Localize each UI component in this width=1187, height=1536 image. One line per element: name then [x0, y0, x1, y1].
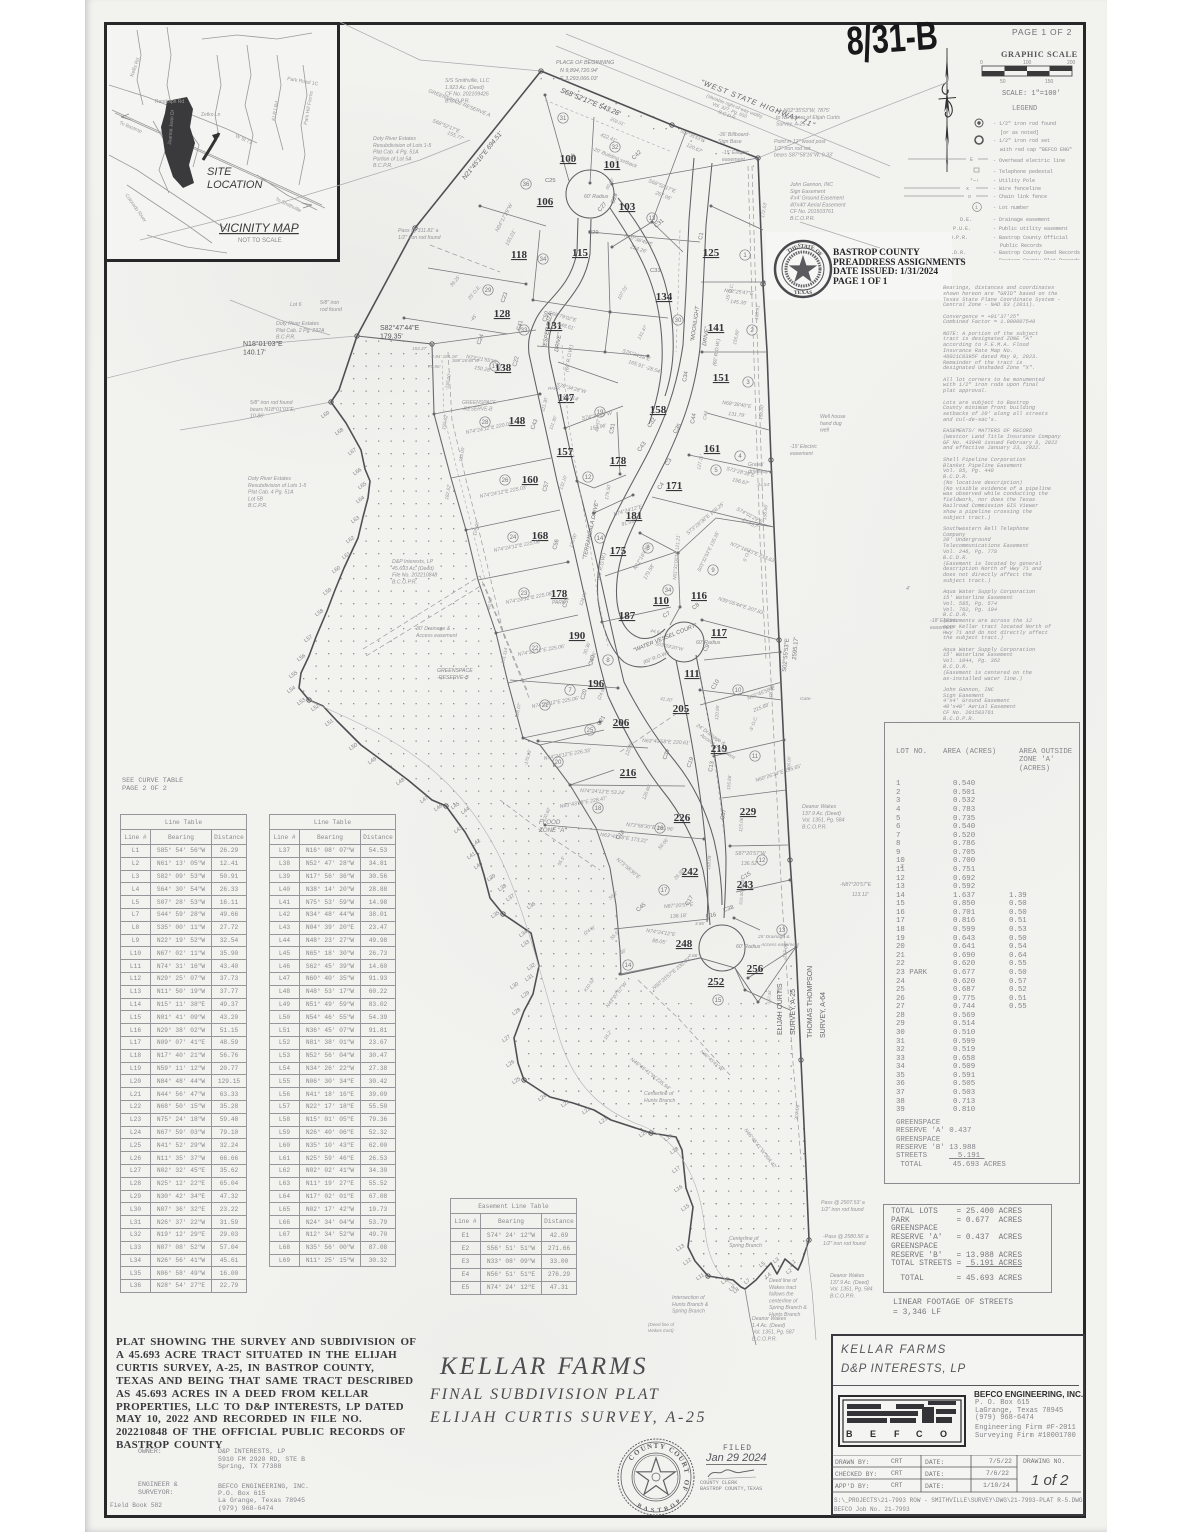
svg-text:L50: L50	[348, 742, 359, 752]
svg-text:L69: L69	[320, 410, 331, 420]
svg-text:151: 151	[713, 372, 730, 384]
svg-text:C1: C1	[698, 232, 705, 240]
svg-text:166.91': 166.91'	[754, 303, 762, 320]
svg-text:Hunts Branch: Hunts Branch	[769, 1312, 801, 1318]
svg-text:ZONE "A": ZONE "A"	[538, 827, 567, 834]
svg-text:88.05': 88.05'	[652, 938, 668, 946]
svg-text:161: 161	[704, 443, 721, 455]
svg-text:easement: easement	[930, 625, 953, 631]
svg-text:34: 34	[665, 588, 672, 594]
svg-text:178: 178	[610, 455, 627, 467]
svg-text:L26: L26	[505, 1059, 516, 1069]
svg-text:N74°24'12"E 225.06': N74°24'12"E 225.06'	[505, 591, 554, 606]
svg-text:36: 36	[523, 182, 530, 188]
svg-text:-36' Billboard-: -36' Billboard-	[718, 132, 750, 138]
svg-text:N39°05'44"E 207.83': N39°05'44"E 207.83'	[717, 596, 765, 617]
svg-text:C45: C45	[635, 902, 647, 913]
svg-text:N74°24'12"E 53.24': N74°24'12"E 53.24'	[580, 788, 626, 796]
svg-text:41.20': 41.20'	[660, 696, 673, 703]
svg-text:3: 3	[746, 380, 750, 386]
svg-text:driveway: driveway	[748, 469, 769, 475]
svg-text:Plat Cab. 4 Pg. 51A: Plat Cab. 4 Pg. 51A	[248, 490, 294, 496]
svg-text:L67: L67	[347, 447, 358, 457]
svg-text:Sign Base: Sign Base	[718, 139, 742, 145]
svg-text:60' Radius: 60' Radius	[584, 194, 609, 200]
svg-text:115: 115	[572, 247, 588, 259]
svg-text:C10: C10	[711, 679, 722, 691]
svg-text:168.09': 168.09'	[706, 855, 712, 870]
svg-text:B.C.O.P.R.: B.C.O.P.R.	[752, 1336, 777, 1342]
svg-text:12: 12	[759, 858, 766, 864]
svg-text:THOMAS THOMPSON: THOMAS THOMPSON	[807, 966, 814, 1038]
svg-text:S82°47'44"E: S82°47'44"E	[380, 324, 420, 332]
svg-text:75.96': 75.96'	[428, 364, 440, 369]
svg-text:156.67': 156.67'	[732, 477, 751, 487]
svg-text:L11: L11	[695, 1272, 705, 1282]
svg-text:153.37': 153.37'	[412, 346, 427, 351]
svg-text:Deanor Wakes: Deanor Wakes	[802, 804, 837, 810]
svg-text:26: 26	[502, 478, 509, 484]
svg-text:-RESERVE-B: -RESERVE-B	[462, 407, 493, 413]
svg-text:Lot 6: Lot 6	[290, 302, 302, 308]
svg-text:D&P Interests, LP: D&P Interests, LP	[392, 559, 434, 565]
svg-text:Access easement: Access easement	[760, 942, 800, 948]
svg-text:File No. 202210848: File No. 202210848	[392, 573, 437, 579]
svg-text:John Gannon, INC: John Gannon, INC	[789, 182, 833, 188]
svg-text:179.58': 179.58'	[643, 563, 657, 581]
svg-text:bears S87°58'16"W, 0.33': bears S87°58'16"W, 0.33'	[774, 153, 834, 159]
svg-text:C23: C23	[500, 292, 509, 304]
svg-text:L49: L49	[367, 756, 378, 766]
svg-text:190: 190	[569, 630, 586, 642]
svg-text:175: 175	[610, 545, 627, 557]
svg-text:-45': -45'	[469, 313, 479, 324]
svg-text:follows the: follows the	[769, 1292, 794, 1298]
svg-text:Spring Branch &: Spring Branch &	[769, 1305, 807, 1311]
svg-text:L59: L59	[322, 587, 333, 597]
svg-text:171: 171	[666, 480, 683, 492]
svg-text:easement: easement	[722, 157, 745, 163]
svg-text:127.11': 127.11'	[696, 453, 705, 470]
svg-text:N74°24'12"E 225.03': N74°24'12"E 225.03'	[479, 485, 528, 500]
svg-text:12: 12	[585, 475, 592, 481]
svg-text:1/2" iron rod set: 1/2" iron rod set	[774, 146, 811, 152]
svg-text:E 3,293,066.03': E 3,293,066.03'	[560, 76, 599, 82]
svg-text:-18' Electric: -18' Electric	[930, 618, 957, 624]
svg-text:5/8" iron: 5/8" iron	[320, 300, 339, 306]
svg-text:L65: L65	[357, 481, 368, 491]
svg-text:L29: L29	[520, 990, 531, 1000]
svg-text:Plat Cab. 2 Pg. 232A: Plat Cab. 2 Pg. 232A	[276, 328, 325, 334]
svg-text:133.00': 133.00'	[458, 446, 466, 462]
svg-text:Intersection of: Intersection of	[672, 1295, 705, 1301]
svg-text:L28: L28	[511, 1007, 522, 1017]
svg-text:GREENSPACE: GREENSPACE	[437, 668, 473, 674]
svg-text:-N87°20'57"E: -N87°20'57"E	[840, 882, 872, 888]
svg-text:3.86': 3.86'	[688, 953, 699, 959]
svg-text:Plat Cab. 4 Pg. 51A: Plat Cab. 4 Pg. 51A	[373, 150, 419, 156]
svg-text:39.25': 39.25'	[449, 274, 463, 289]
svg-text:L68: L68	[334, 427, 345, 437]
svg-text:L30: L30	[509, 981, 520, 991]
svg-text:DRIVE": DRIVE"	[702, 326, 711, 347]
svg-text:91.03': 91.03'	[621, 518, 637, 528]
svg-text:Spring Branch: Spring Branch	[672, 1309, 705, 1315]
svg-text:SURVEY, A-25: SURVEY, A-25	[790, 989, 797, 1035]
svg-text:L35: L35	[490, 910, 501, 920]
svg-text:-15' Electric: -15' Electric	[722, 150, 749, 156]
svg-text:S68°52'17"E: S68°52'17"E	[431, 118, 461, 135]
svg-text:30' Drainage &: 30' Drainage &	[416, 626, 451, 632]
svg-text:103: 103	[619, 201, 636, 213]
svg-text:S6.05': S6.05'	[657, 836, 671, 851]
svg-text:9: 9	[711, 568, 715, 574]
svg-text:Portion of Lot 5A: Portion of Lot 5A	[373, 156, 412, 162]
svg-text:L16: L16	[673, 1184, 684, 1194]
svg-text:Hunts Branch: Hunts Branch	[644, 1098, 676, 1104]
svg-text:GREENSPACE: GREENSPACE	[462, 400, 497, 406]
svg-text:Hunts Branch &: Hunts Branch &	[672, 1302, 709, 1308]
svg-text:L57: L57	[303, 634, 314, 644]
svg-text:Deanor Wakes: Deanor Wakes	[830, 1273, 865, 1279]
svg-text:137.9 Ac. (Deed): 137.9 Ac. (Deed)	[830, 1280, 869, 1286]
svg-text:131.79': 131.79'	[728, 411, 747, 419]
svg-text:132.10': 132.10'	[558, 474, 568, 490]
svg-text:41.57': 41.57'	[594, 418, 602, 433]
svg-text:C29: C29	[588, 230, 599, 236]
svg-text:32: 32	[612, 145, 619, 151]
svg-text:5/8" iron rod found: 5/8" iron rod found	[250, 400, 294, 406]
svg-text:Spring Branch: Spring Branch	[729, 1243, 762, 1249]
svg-text:B.C.O.P.R.: B.C.O.P.R.	[802, 824, 827, 830]
svg-text:160: 160	[522, 474, 539, 486]
svg-text:-15' Electric: -15' Electric	[790, 444, 817, 450]
svg-text:S02°55'53"E: S02°55'53"E	[782, 638, 791, 672]
svg-text:C22: C22	[512, 356, 521, 368]
svg-text:145.35': 145.35'	[730, 299, 748, 307]
svg-text:C13: C13	[708, 761, 716, 773]
svg-text:128: 128	[494, 308, 511, 320]
svg-text:216.07': 216.07'	[514, 702, 522, 719]
svg-text:"MOONLIGHT: "MOONLIGHT	[690, 305, 701, 342]
svg-text:-5' O.C.: -5' O.C.	[748, 715, 759, 732]
svg-text:Doty River Estates: Doty River Estates	[248, 476, 291, 482]
svg-text:-34.54': -34.54'	[756, 482, 770, 487]
svg-text:120.95': 120.95'	[714, 705, 720, 720]
svg-text:easement: easement	[790, 451, 813, 457]
svg-text:Centerline of: Centerline of	[729, 1236, 759, 1242]
svg-text:L56: L56	[296, 653, 307, 663]
svg-text:Lot 5B: Lot 5B	[248, 496, 264, 502]
svg-text:5: 5	[714, 468, 718, 474]
svg-text:S/S Smithville, LLC: S/S Smithville, LLC	[445, 78, 490, 84]
svg-text:125: 125	[703, 247, 720, 259]
svg-text:111.30': 111.30'	[540, 396, 550, 413]
svg-text:106: 106	[537, 196, 554, 208]
svg-text:C24: C24	[476, 333, 486, 346]
svg-text:105.86': 105.86'	[726, 775, 732, 790]
svg-text:20: 20	[555, 760, 562, 766]
svg-text:45.693 Ac. (Deed): 45.693 Ac. (Deed)	[392, 566, 434, 572]
svg-text:111: 111	[684, 668, 699, 680]
svg-text:centerline of: centerline of	[769, 1298, 798, 1304]
svg-text:137.9 Ac. (Deed): 137.9 Ac. (Deed)	[802, 811, 841, 817]
svg-text:hand dug: hand dug	[820, 421, 842, 427]
svg-text:155.77': 155.77'	[446, 130, 465, 142]
svg-text:Wakes tract): Wakes tract)	[648, 1328, 674, 1333]
svg-text:N73°58'30"E 230.96': N73°58'30"E 230.96'	[626, 822, 675, 833]
svg-text:25' Drainage &: 25' Drainage &	[757, 934, 790, 940]
svg-text:C25: C25	[545, 178, 556, 184]
svg-text:101.114: 101.114	[500, 647, 508, 664]
svg-text:L25: L25	[511, 1076, 522, 1086]
svg-text:800.00': 800.00'	[786, 756, 792, 770]
svg-text:bears N18°01'03"E,: bears N18°01'03"E,	[250, 407, 295, 413]
svg-text:1/2" iron rod found: 1/2" iron rod found	[823, 1241, 867, 1247]
svg-text:N18°01'03"E: N18°01'03"E	[243, 340, 283, 348]
svg-text:34: 34	[540, 257, 547, 263]
svg-text:B.C.O.P.R.: B.C.O.P.R.	[790, 216, 815, 222]
svg-text:2: 2	[750, 328, 754, 334]
svg-text:18: 18	[595, 806, 602, 812]
svg-text:C57: C57	[542, 481, 551, 493]
svg-text:13: 13	[649, 216, 656, 222]
svg-text:Gravel: Gravel	[748, 462, 764, 468]
svg-text:C51: C51	[609, 423, 617, 435]
svg-text:L55: L55	[288, 670, 299, 680]
svg-text:C7: C7	[662, 611, 671, 620]
svg-text:L15: L15	[680, 1203, 691, 1213]
svg-text:CF No. 201503761: CF No. 201503761	[790, 209, 834, 215]
svg-text:-RESERVE-B: -RESERVE-B	[437, 675, 469, 681]
svg-text:C8: C8	[691, 602, 701, 611]
svg-text:40.90': 40.90'	[486, 597, 493, 610]
svg-text:206: 206	[613, 717, 630, 729]
svg-text:N74°24'12"E 225.06': N74°24'12"E 225.06'	[517, 644, 566, 658]
svg-text:1.923 Ac. (Deed): 1.923 Ac. (Deed)	[445, 85, 484, 91]
svg-text:Vol. 1351, Pg. 584: Vol. 1351, Pg. 584	[802, 818, 845, 824]
svg-text:C43: C43	[530, 419, 539, 431]
svg-text:1/2" iron rod found: 1/2" iron rod found	[398, 235, 442, 241]
svg-text:172.63': 172.63'	[760, 201, 769, 218]
svg-text:Wakes tract: Wakes tract	[769, 1285, 797, 1291]
svg-text:Access easement: Access easement	[415, 633, 458, 639]
svg-text:C57: C57	[720, 809, 728, 821]
svg-text:L64: L64	[355, 495, 366, 505]
svg-text:Vol. 1351, Pg. 587: Vol. 1351, Pg. 587	[752, 1330, 796, 1336]
svg-text:4: 4	[738, 454, 742, 460]
svg-text:C55: C55	[562, 597, 571, 609]
svg-text:216: 216	[620, 767, 637, 779]
svg-text:B.C.O.P.R.: B.C.O.P.R.	[830, 1293, 855, 1299]
svg-text:25' O.E.: 25' O.E.	[466, 284, 482, 302]
svg-text:C40: C40	[588, 655, 597, 667]
svg-text:10.86': 10.86'	[250, 414, 265, 420]
svg-text:S88°26'48"W: S88°26'48"W	[452, 358, 480, 363]
svg-text:N73°58'30"E: N73°58'30"E	[615, 857, 642, 881]
svg-text:2595.17': 2595.17'	[792, 637, 800, 660]
svg-text:B.C.P.R.: B.C.P.R.	[248, 503, 268, 509]
svg-text:C20: C20	[580, 689, 589, 701]
svg-text:3.86': 3.86'	[695, 921, 705, 926]
svg-text:15: 15	[715, 998, 722, 1004]
svg-text:140.17': 140.17'	[243, 350, 266, 357]
svg-text:138.18': 138.18'	[670, 913, 688, 920]
svg-text:N60°26'34"E 195.65': N60°26'34"E 195.65'	[755, 763, 803, 784]
svg-text:158: 158	[650, 404, 667, 416]
svg-text:L41: L41	[466, 851, 477, 861]
svg-text:N68°38'40"E: N68°38'40"E	[722, 400, 753, 410]
svg-text:B.C.P.R.: B.C.P.R.	[373, 163, 393, 169]
svg-text:L33: L33	[520, 939, 531, 949]
svg-text:C34: C34	[682, 370, 690, 382]
svg-text:Resubdivision of Lots 1-5: Resubdivision of Lots 1-5	[248, 483, 306, 489]
svg-text:136.52': 136.52'	[741, 861, 759, 867]
svg-text:N74°24'12"E 226.33': N74°24'12"E 226.33'	[543, 748, 592, 762]
svg-text:L31: L31	[524, 973, 535, 983]
svg-text:130.00': 130.00'	[568, 532, 578, 548]
svg-text:N63°43'58"E 220.61': N63°43'58"E 220.61'	[642, 738, 691, 747]
svg-text:FLOOD: FLOOD	[539, 819, 561, 826]
svg-text:60' Radius: 60' Radius	[736, 944, 761, 950]
svg-text:L63: L63	[350, 515, 361, 525]
svg-text:179.50': 179.50'	[604, 483, 613, 500]
svg-text:31: 31	[560, 116, 567, 122]
svg-text:Pass @ 2507.53' a: Pass @ 2507.53' a	[821, 1200, 865, 1206]
svg-text:Centerline of: Centerline of	[644, 1091, 674, 1097]
svg-text:156.66': 156.66'	[732, 328, 741, 346]
svg-text:187: 187	[619, 610, 636, 622]
svg-text:N72°16'43"E 233.63': N72°16'43"E 233.63'	[729, 541, 776, 565]
svg-text:165.91' -28.54': 165.91' -28.54'	[627, 359, 662, 376]
svg-text:N74°24'12"E 225.06': N74°24'12"E 225.06'	[493, 539, 542, 554]
svg-text:14: 14	[625, 963, 632, 969]
svg-text:N21°45'16"E 694.51': N21°45'16"E 694.51'	[460, 129, 504, 181]
svg-text:rod found: rod found	[320, 307, 343, 313]
svg-text:Well house: Well house	[820, 414, 846, 420]
svg-text:N50°20'57"E 200.00': N50°20'57"E 200.00'	[651, 956, 692, 992]
svg-text:L32: L32	[526, 962, 537, 972]
svg-text:PARK: PARK	[548, 386, 561, 391]
svg-text:C56: C56	[552, 539, 561, 551]
svg-text:1/2" iron rod found: 1/2" iron rod found	[821, 1207, 865, 1213]
svg-text:13: 13	[779, 928, 786, 934]
svg-text:205: 205	[673, 703, 690, 715]
svg-text:L12: L12	[682, 1257, 693, 1267]
svg-text:Doty River Estates: Doty River Estates	[373, 136, 416, 142]
svg-text:Sign Easement: Sign Easement	[790, 189, 826, 195]
svg-text:S87°20'57"W: S87°20'57"W	[735, 851, 767, 857]
svg-text:229: 229	[740, 806, 757, 818]
svg-text:-Pass @ 2580.56' a: -Pass @ 2580.56' a	[823, 1234, 869, 1240]
svg-text:179.35': 179.35'	[380, 334, 403, 341]
svg-text:29: 29	[485, 288, 492, 294]
svg-text:Doty River Estates: Doty River Estates	[276, 321, 319, 327]
svg-text:131.47': 131.47'	[636, 323, 649, 341]
svg-text:N74°24'12"E 225.06': N74°24'12"E 225.06'	[531, 696, 580, 710]
svg-text:117: 117	[711, 627, 727, 639]
svg-text:7: 7	[568, 688, 572, 694]
svg-text:11: 11	[752, 754, 759, 760]
svg-text:C32: C32	[647, 417, 658, 429]
svg-text:N04°17'29"W: N04°17'29"W	[494, 202, 514, 233]
svg-text:C17: C17	[685, 895, 696, 907]
svg-text:(Deed line of: (Deed line of	[648, 1322, 675, 1327]
svg-text:N01°31'00"W 121.21': N01°31'00"W 121.21'	[672, 533, 682, 580]
svg-text:252: 252	[708, 976, 725, 988]
svg-text:N74°24'12"E 220.03': N74°24'12"E 220.03'	[465, 421, 514, 436]
svg-text:110: 110	[653, 595, 669, 607]
svg-text:215.88': 215.88'	[752, 702, 772, 715]
svg-text:C43: C43	[637, 441, 648, 453]
svg-text:1.4 Ac. (Deed): 1.4 Ac. (Deed)	[752, 1323, 786, 1329]
svg-text:155.01': 155.01'	[504, 228, 518, 247]
svg-text:113.12': 113.12'	[852, 892, 869, 898]
svg-text:"TERRANGALA DRIVE": "TERRANGALA DRIVE"	[582, 499, 601, 560]
svg-text:118: 118	[511, 249, 527, 261]
svg-text:N 9,894,720.94': N 9,894,720.94'	[560, 68, 599, 74]
svg-text:111.30': 111.30'	[548, 415, 558, 430]
svg-text:30: 30	[675, 318, 682, 324]
svg-text:ELIJAH CURTIS: ELIJAH CURTIS	[777, 983, 784, 1035]
svg-text:256: 256	[747, 963, 764, 975]
svg-text:C44: C44	[702, 410, 709, 420]
svg-text:L48: L48	[395, 777, 406, 787]
svg-text:25: 25	[587, 728, 594, 734]
svg-text:8: 8	[606, 658, 610, 664]
svg-text:157: 157	[557, 446, 574, 458]
svg-text:L58: L58	[314, 608, 325, 618]
svg-text:B.C.O.P.R.: B.C.O.P.R.	[392, 579, 417, 585]
svg-text:PLACE OF BEGINNING: PLACE OF BEGINNING	[556, 60, 614, 66]
svg-text:L51: L51	[324, 718, 335, 728]
svg-text:107.01': 107.01'	[617, 284, 631, 301]
svg-text:C42: C42	[631, 150, 643, 162]
svg-text:L17: L17	[671, 1165, 682, 1175]
svg-text:L54: L54	[286, 685, 297, 695]
svg-text:14: 14	[597, 536, 604, 542]
svg-text:116: 116	[691, 590, 707, 602]
svg-text:L18: L18	[669, 1146, 680, 1156]
svg-text:well: well	[820, 428, 830, 434]
svg-text:Deed line of: Deed line of	[769, 1278, 797, 1284]
svg-text:L13: L13	[675, 1243, 686, 1253]
svg-text:N74°24'12"E: N74°24'12"E	[646, 928, 677, 938]
svg-text:B.C.P.R.: B.C.P.R.	[276, 335, 296, 341]
svg-text:S16.00,306.0': S16.00,306.0'	[738, 879, 745, 905]
svg-text:24: 24	[510, 535, 517, 541]
svg-text:L60: L60	[331, 565, 342, 575]
svg-text:40'x40' Aerial Easement: 40'x40' Aerial Easement	[790, 202, 846, 208]
svg-text:422.41': 422.41'	[599, 132, 618, 144]
svg-text:1: 1	[743, 253, 747, 259]
svg-text:4': 4'	[906, 586, 911, 592]
svg-text:C16: C16	[705, 912, 717, 920]
svg-text:DRIVE": DRIVE"	[554, 332, 563, 353]
svg-text:Point in 12" wood post: Point in 12" wood post	[774, 139, 826, 145]
svg-text:202.01': 202.01'	[609, 116, 626, 127]
svg-text:C44: C44	[690, 412, 698, 424]
svg-text:L27: L27	[501, 1034, 512, 1044]
svg-text:L53: L53	[296, 697, 307, 707]
svg-text:Resubdivision of Lots 1-5: Resubdivision of Lots 1-5	[373, 143, 431, 149]
svg-text:Pass @ 311.81' a: Pass @ 311.81' a	[398, 228, 439, 234]
svg-text:134: 134	[656, 291, 673, 303]
svg-text:3': 3'	[900, 864, 905, 870]
svg-text:L62: L62	[345, 535, 356, 545]
svg-text:Gate-: Gate-	[800, 696, 812, 702]
svg-text:17: 17	[661, 888, 668, 894]
